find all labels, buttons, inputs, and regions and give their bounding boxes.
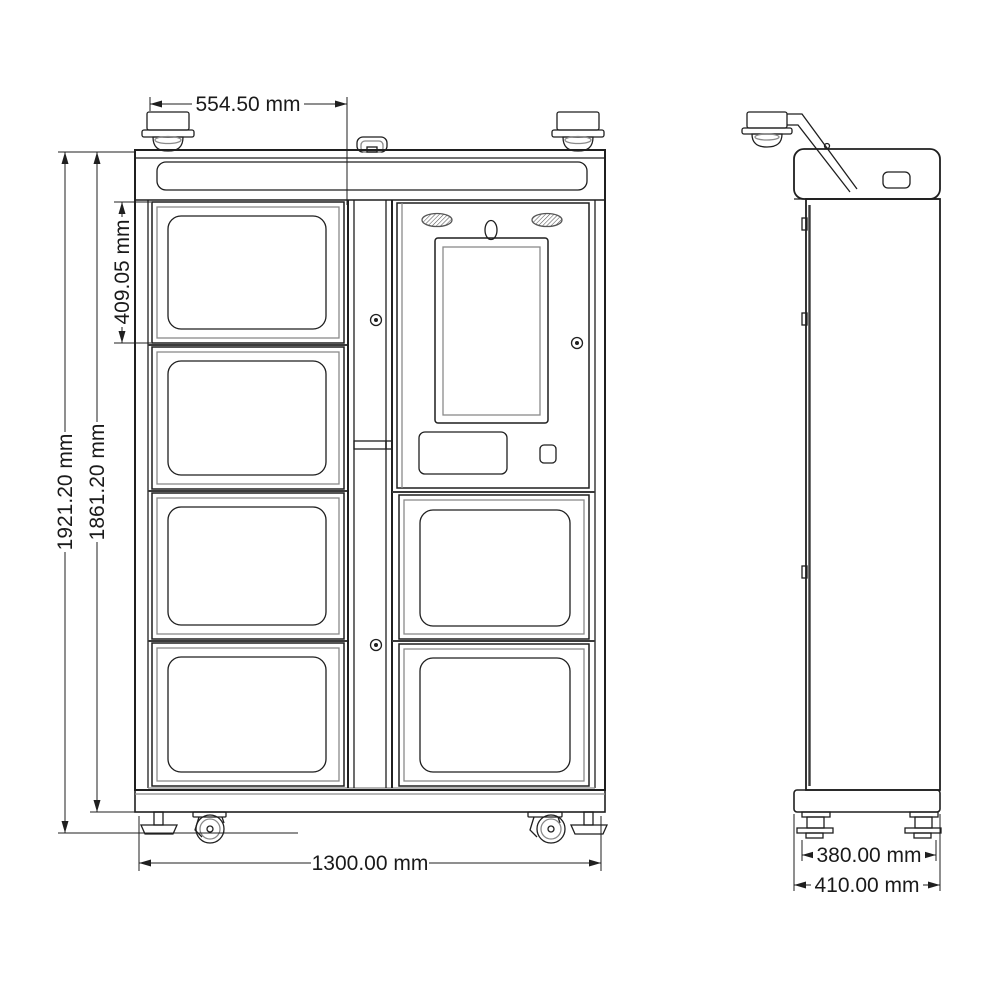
service-door [397,203,589,488]
locker-door [399,495,589,639]
caster-wheel-right [528,812,565,843]
locker-door [399,644,589,786]
caster-wheel-left [193,812,226,843]
cabinet-body [135,150,605,790]
leveling-foot-left [141,812,177,834]
dim-label-overall-depth: 410.00 mm [814,874,919,897]
side-header-vent [883,172,910,188]
dim-label-top-width: 554.50 mm [195,93,300,116]
side-caster-rear [905,812,941,838]
dim-foot-spacing: 380.00 mm [802,840,936,867]
base-plinth [135,790,605,812]
right-locker-column [392,492,595,786]
leveling-foot-right [571,812,607,834]
locker-machine-drawing: 554.50 mm 409.05 mm 1921.20 mm [0,0,1000,1000]
locker-door [152,643,344,786]
side-view [742,112,941,838]
dim-label-foot-spacing: 380.00 mm [816,844,921,867]
dim-label-overall-height: 1921.20 mm [54,434,77,551]
left-locker-column [148,202,348,786]
dim-compartment-height: 409.05 mm [111,202,151,343]
header-sign-panel [157,162,587,190]
locker-door [152,202,344,343]
touchscreen [435,238,548,423]
dim-label-compartment-height: 409.05 mm [111,219,134,324]
camera-icon [485,221,497,240]
beacon-light-right [552,112,604,151]
key-lock-icon [371,315,382,326]
card-reader [540,445,556,463]
locker-door [152,493,344,639]
key-lock-icon [572,338,583,349]
side-caster-front [797,812,833,838]
dim-label-cabinet-height: 1861.20 mm [86,424,109,541]
center-column [348,200,392,788]
front-view [135,112,607,843]
key-lock-icon [371,640,382,651]
side-body [802,199,940,790]
dim-label-overall-width: 1300.00 mm [312,852,429,875]
speaker-grille-icon [532,214,562,227]
speaker-grille-icon [422,214,452,227]
side-base-plinth [794,790,940,812]
beacon-light-side [742,112,857,192]
beacon-bracket [787,114,857,192]
beacon-light-left [142,112,194,151]
pickup-port [419,432,507,474]
locker-door [152,347,344,489]
technical-drawing-page: 554.50 mm 409.05 mm 1921.20 mm [0,0,1000,1000]
side-header [794,149,940,199]
